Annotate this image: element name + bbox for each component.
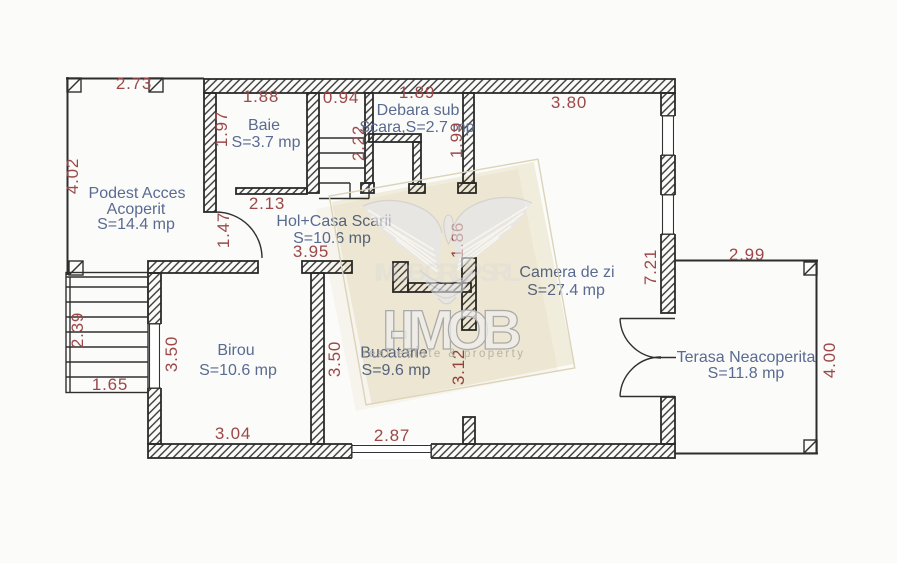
svg-text:2.73: 2.73 <box>116 74 152 93</box>
svg-text:3.80: 3.80 <box>551 93 587 112</box>
svg-text:2.87: 2.87 <box>374 426 410 445</box>
svg-text:4.02: 4.02 <box>63 158 82 194</box>
svg-text:4.00: 4.00 <box>820 342 839 378</box>
svg-text:1.89: 1.89 <box>399 83 435 102</box>
svg-text:1.99: 1.99 <box>447 122 466 158</box>
svg-text:S=3.7 mp: S=3.7 mp <box>232 134 301 151</box>
svg-text:IMOB GRUP SRL: IMOB GRUP SRL <box>374 259 524 287</box>
svg-text:1.65: 1.65 <box>92 375 128 394</box>
svg-text:Terasa Neacoperita: Terasa Neacoperita <box>677 349 816 366</box>
svg-text:2.39: 2.39 <box>68 312 87 348</box>
svg-text:0.94: 0.94 <box>323 88 359 107</box>
svg-text:Debara sub: Debara sub <box>377 102 460 119</box>
svg-text:7.21: 7.21 <box>641 249 660 285</box>
svg-text:S=11.8 mp: S=11.8 mp <box>708 365 785 382</box>
svg-text:3.50: 3.50 <box>325 341 344 377</box>
svg-text:1.88: 1.88 <box>243 87 279 106</box>
svg-text:1.97: 1.97 <box>212 111 231 147</box>
svg-text:2.13: 2.13 <box>249 194 285 213</box>
svg-text:Podest Acces: Podest Acces <box>89 185 186 202</box>
svg-text:3.50: 3.50 <box>162 336 181 372</box>
svg-text:2.22: 2.22 <box>349 125 368 161</box>
svg-text:Birou: Birou <box>217 342 254 359</box>
svg-text:S=10.6 mp: S=10.6 mp <box>199 362 277 379</box>
svg-text:1.47: 1.47 <box>214 212 233 248</box>
svg-text:S=14.4 mp: S=14.4 mp <box>97 216 175 233</box>
svg-text:Baie: Baie <box>248 117 280 134</box>
svg-text:real estate & property: real estate & property <box>363 348 526 360</box>
svg-text:2.99: 2.99 <box>729 245 765 264</box>
svg-text:3.04: 3.04 <box>215 424 251 443</box>
